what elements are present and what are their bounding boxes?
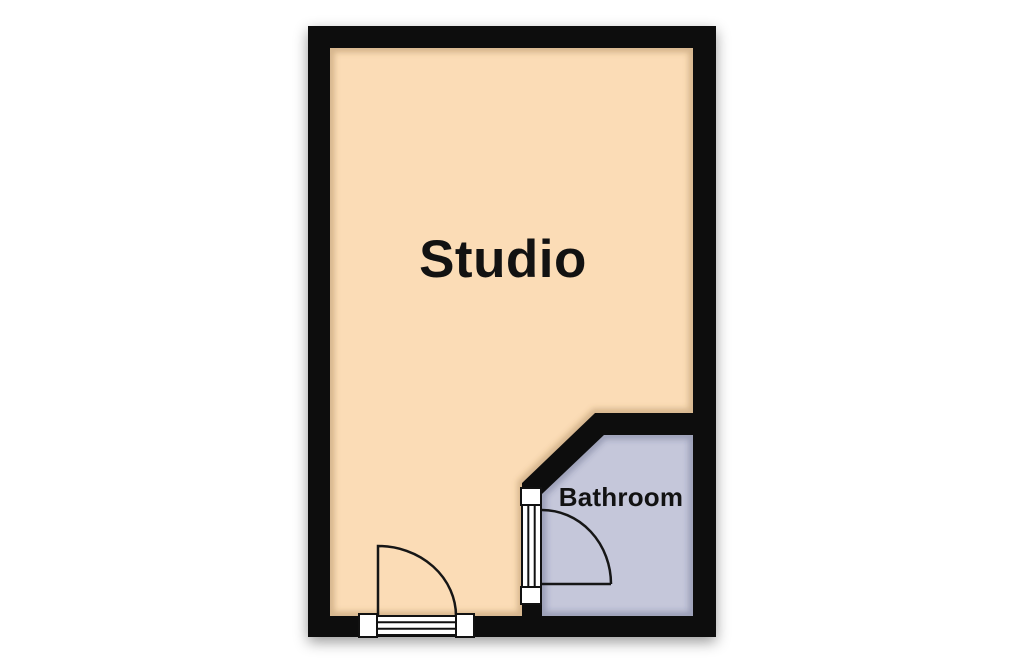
entry-threshold-bar xyxy=(377,616,456,635)
bathroom-threshold-end-cap xyxy=(521,587,541,604)
entry-doorway-threshold xyxy=(359,614,474,637)
bathroom-threshold-bar xyxy=(522,505,541,587)
entry-threshold-end-cap xyxy=(359,614,377,637)
floor-plan-canvas: Studio Bathroom xyxy=(0,0,1024,663)
floor-plan: Studio Bathroom xyxy=(0,0,1024,663)
bathroom-doorway-threshold xyxy=(521,488,541,604)
bathroom-threshold-end-cap xyxy=(521,488,541,505)
bathroom-room-label: Bathroom xyxy=(559,482,683,512)
entry-threshold-end-cap xyxy=(456,614,474,637)
studio-room-label: Studio xyxy=(419,230,587,289)
